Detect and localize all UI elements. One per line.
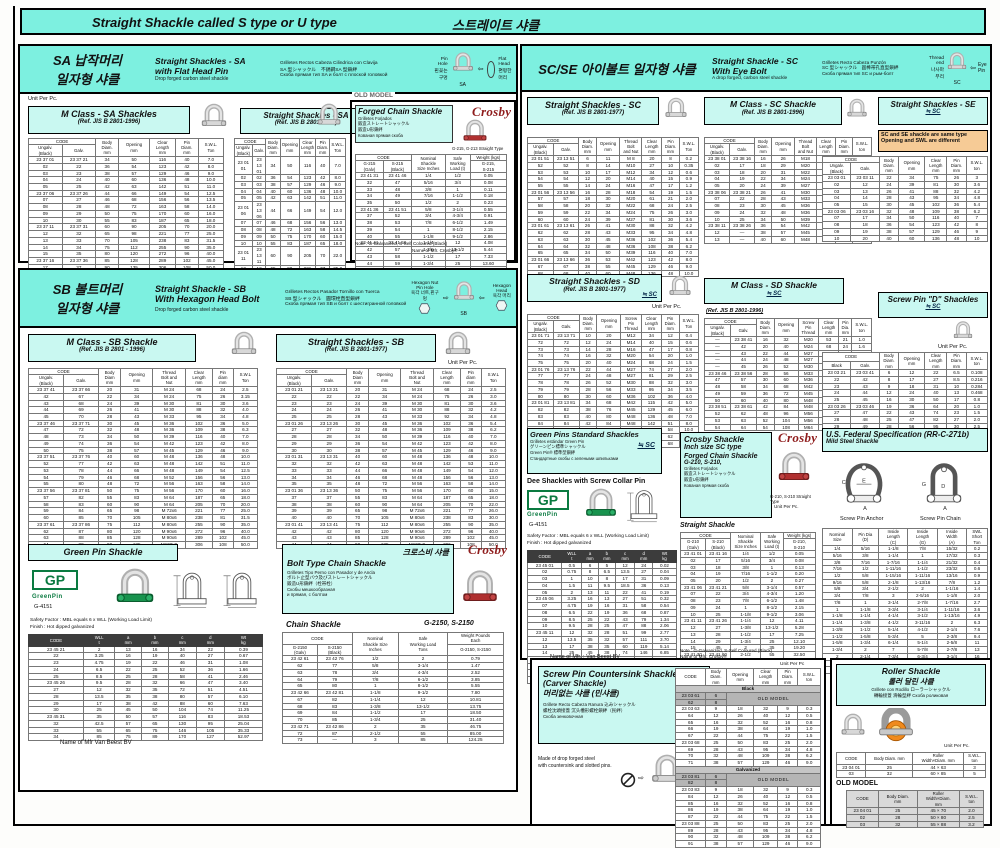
roller-table: CODEBody Diam. mmRoller Width×Diam. mmS.… xyxy=(836,752,986,778)
old-model-label: OLD MODEL xyxy=(352,92,395,99)
msd-label: M Class - SD Shackle ≒ SC xyxy=(704,278,844,304)
crosby-shackle-icon xyxy=(460,118,490,148)
cs-made-1: Made of drop forged steel xyxy=(538,756,595,763)
sa-flat-head-label: Flat Head편평한 머리 xyxy=(498,57,516,81)
shackle-icon xyxy=(846,96,868,124)
sb-mclass-label: M Class - SB Shackle (Ref. JIS B 2801 - … xyxy=(28,334,196,362)
shackle-icon xyxy=(952,320,974,344)
scse-body: Straight Shackles - SC (Ref. JIS B 2801-… xyxy=(522,92,990,658)
chain-shackle-table: CODENominal Shackle Size InchesSafe Work… xyxy=(282,632,504,744)
sa-shackle-diagram: SA xyxy=(451,51,475,88)
gp-model: G-4151 xyxy=(34,604,52,610)
roller-body: Roller Shackle 롤러 달린 샤클 Grillete con Rod… xyxy=(832,660,990,824)
usfed-table: Nominal SizePin Dia (D)Inside Length (C)… xyxy=(822,528,988,674)
sa-panel: SA 납작머리 일자형 샤클 Straight Shackles - SA wi… xyxy=(18,44,518,263)
sa-mclass-table: CODEBody Diam. mmOpening mmClear Length … xyxy=(28,138,224,272)
greenpin-std-box: Green Pins Standard Shackles Grilletes e… xyxy=(527,428,662,474)
sb-straight-label: Straight Shackles - SB (Ref. JIS B 2801-… xyxy=(276,334,436,362)
unit-label: Unit Per Pc. xyxy=(448,360,477,366)
sb-intl: Grilletes Rectos Pasador Tornillo con Tu… xyxy=(285,290,410,307)
scse-title: SC/SE 아이볼트 일자형 샤클 xyxy=(522,59,712,78)
arrow-icon: ⇦ xyxy=(479,294,485,302)
unit-label: Unit Per Pc xyxy=(780,662,804,667)
crosby-shackle-icon xyxy=(460,568,500,612)
sb-diagram: Hexagon Nut Pin Hole 육각 너트,핀구멍 ⇨ SB ⇦ He… xyxy=(410,280,516,317)
svg-text:A: A xyxy=(943,506,947,512)
svg-text:A: A xyxy=(863,506,867,512)
dimension-drawing-icon xyxy=(220,566,264,612)
greenpin-label: Green Pin Shackle xyxy=(28,544,178,561)
cs-made-2: with countersink and slotted pins. xyxy=(538,763,612,770)
crosby-caption: G-215, G-213 Straight Type xyxy=(452,146,510,151)
sa-body: Unit Per Pc. M Class - SA Shackles (Ref.… xyxy=(20,94,516,260)
banner-title-kr: 스트레이트 샤클 xyxy=(452,15,539,34)
greenpin-shackle-icon xyxy=(584,486,618,526)
scse-intl: Grilletes Recto Cabeza Punzón SC 型シャックル … xyxy=(822,60,927,76)
shackle-icon xyxy=(444,330,472,362)
sc-label: Straight Shackles - SC (Ref. JIS B 2801-… xyxy=(527,97,659,125)
scse-subtitle: Straight Shackle - SC With Eye Bolt A dr… xyxy=(712,56,822,81)
unit-label: Unit Per Pc. xyxy=(652,304,681,310)
flat-head-pin-icon xyxy=(487,61,496,78)
greenpin-shackle-icon xyxy=(114,566,156,614)
thread-end-label: Thread end나사마무리 xyxy=(927,56,944,80)
chain-label: Screw Pin Chain xyxy=(920,516,961,522)
anchor-label: Screw Pin Anchor xyxy=(840,516,883,522)
crosby-mfr: Name of Mfr. Crosby® xyxy=(412,248,458,253)
sa-crosby-box: Forged Chain Shackle Grilletes Forjados … xyxy=(350,100,516,262)
hexagon-icon xyxy=(495,299,508,312)
gp-safety: Safety Factor : MBL equals 6 x WLL (Work… xyxy=(527,534,649,540)
shackle-icon xyxy=(230,330,258,362)
svg-text:G: G xyxy=(922,482,926,488)
crosby-sc-box: Crosby Shackle Inch size SC type Forged … xyxy=(680,432,772,518)
arrow-icon: ⇨ xyxy=(638,774,644,782)
se-label: Straight Shackles - SE ≒ SC xyxy=(878,97,988,125)
gp-model: G-4151 xyxy=(529,522,547,528)
countersink-panel: Screw Pin Countersink Shackle (Carver Sh… xyxy=(530,658,826,826)
msd-ref: (Ref. JIS B 2801-1996) xyxy=(706,308,763,314)
sb-title: SB 볼트머리 일자형 샤클 xyxy=(20,279,155,317)
shackle-icon xyxy=(451,51,475,77)
shackle-icon xyxy=(452,280,476,306)
dimension-drawing-icon xyxy=(170,566,214,612)
greenpin-logo-text: GreenPin xyxy=(32,594,63,600)
shackle-icon xyxy=(946,51,968,75)
sa-intl: Grilletes Rectos Cabeza Cilindrica con C… xyxy=(280,61,430,78)
unit-label: Unit Per Pc. xyxy=(938,344,967,350)
sb-subtitle: Straight Shackle - SB With Hexagon Head … xyxy=(155,284,285,313)
sa-diagram: Pin Hole핀꽂는 구멍 SA ⇦ Flat Head편평한 머리 xyxy=(430,51,516,88)
bolt-type-box: 크로스비 샤클 Bolt Type Chain Shackle Grillete… xyxy=(282,544,454,614)
shackle-icon xyxy=(664,96,688,124)
gp-finish: Finish : Hot dipped galvanized xyxy=(527,541,591,547)
slotted-pin-icon xyxy=(620,772,636,788)
hexagon-icon xyxy=(418,302,431,315)
sb-straight-table: CODEBody Diam mmOpening mmThread Bolt an… xyxy=(276,368,506,549)
arrow-icon: ⇦ xyxy=(478,65,484,73)
eye-pin-label: Eye Pin xyxy=(978,62,990,74)
se-note: SC and SE shackle are same type Opening … xyxy=(878,130,988,152)
roller-old-table: CODEBody Diam. mmRoller Width×Diam. mmS.… xyxy=(846,790,984,828)
hex-head-label: Hexagon Head 육각 머리 xyxy=(488,283,516,313)
screw-pin-chain-diagram: GDA xyxy=(918,458,970,514)
svg-text:C: C xyxy=(842,480,846,486)
crosby-logo: Crosby xyxy=(468,542,507,558)
gp-mfr: Name of Mfr Van Beest BV xyxy=(60,740,132,746)
greenpin-logo: GP xyxy=(32,570,78,590)
unit-label: Unit Per Pc. xyxy=(774,504,799,509)
arrow-icon: ⇨ xyxy=(443,294,449,302)
crosby-sc-table: CODENominal Shackle Size InchesSafe Work… xyxy=(680,532,816,659)
shackle-icon xyxy=(200,102,228,134)
sa-mclass-label: M Class - SA Shackles (Ref. JIS B 2801-1… xyxy=(28,106,190,134)
scse-header: SC/SE 아이볼트 일자형 샤클 Straight Shackle - SC … xyxy=(522,46,990,92)
usfed-box: U.S. Federal Specification (RR-C-271b) M… xyxy=(822,428,988,452)
chain-shackle-label: Chain Shackle xyxy=(286,620,341,629)
crosby-title-box: Forged Chain Shackle Grilletes Forjados … xyxy=(355,105,453,143)
g2150-label: G-2150, S-2150 xyxy=(424,620,474,627)
old-model-label: OLD MODEL xyxy=(836,780,878,787)
greenpin-logo-text: GreenPin xyxy=(527,512,558,518)
svg-text:E: E xyxy=(862,478,866,484)
crosby-note: Note : G-Galvanized, S-Self Coloured (Bl… xyxy=(680,648,772,653)
unit-label: Unit Per Pc. xyxy=(944,744,970,749)
sb-panel: SB 볼트머리 일자형 샤클 Straight Shackle - SB Wit… xyxy=(18,268,518,792)
sc-table: CODEBody Diam. mmOpening mmThread Bolt a… xyxy=(527,137,699,277)
arrow-icon: ⇦ xyxy=(970,64,976,72)
sb-mclass-table: CODEBody Diam mmOpening mmThread Bolt an… xyxy=(28,368,258,549)
unit-label: Unit Per Pc. xyxy=(28,96,57,102)
hex-nut-label: Hexagon Nut Pin Hole 육각 너트,핀구멍 xyxy=(410,280,440,316)
roller-panel: Roller Shackle 롤러 달린 샤클 Grillete con Rod… xyxy=(830,658,992,826)
sa-subtitle: Straight Shackles - SA with Flat Head Pi… xyxy=(155,56,280,82)
shackle-icon xyxy=(316,102,342,132)
cs-body: Screw Pin Countersink Shackle (Carver Sh… xyxy=(532,660,824,824)
sc-shackle-diagram: SC xyxy=(946,51,968,86)
sb-shackle-diagram: SB xyxy=(452,280,476,317)
shackle-icon xyxy=(840,712,866,742)
sa-title: SA 납작머리 일자형 샤클 xyxy=(20,50,155,88)
sb-header: SB 볼트머리 일자형 샤클 Straight Shackle - SB Wit… xyxy=(20,270,516,328)
scse-panel: SC/SE 아이볼트 일자형 샤클 Straight Shackle - SC … xyxy=(520,44,992,660)
se-table: CODEBody Diam. mmOpening mmClear Length … xyxy=(822,156,988,242)
gp-finish: Finish : Hot dipped galvanized xyxy=(30,625,94,631)
spd-label: Screw Pin "D" Shackles ≒ SC xyxy=(878,292,988,318)
roller-title-box: Roller Shackle 롤러 달린 샤클 Grillete con Rod… xyxy=(836,664,986,706)
dimension-drawing-icon xyxy=(624,484,664,526)
countersink-table: CODEBody Diam. mmOpening mmClear Length … xyxy=(675,668,821,848)
sa-header: SA 납작머리 일자형 샤클 Straight Shackles - SA wi… xyxy=(20,46,516,94)
crosby-logo: Crosby xyxy=(778,430,817,446)
svg-text:D: D xyxy=(941,484,945,490)
sb-body: M Class - SB Shackle (Ref. JIS B 2801 - … xyxy=(20,328,516,789)
shackle-icon xyxy=(668,274,692,302)
sa-pin-hole-label: Pin Hole핀꽂는 구멍 xyxy=(430,57,448,81)
sa-crosby-table: CODENominal Shackle Size InchesSafe Work… xyxy=(355,154,507,274)
scse-diagram: Thread end나사마무리 SC ⇦ Eye Pin xyxy=(927,51,990,86)
crosby-straight-label: Straight Shackle xyxy=(680,522,735,529)
sd-label: Straight Shackles - SD (Ref. JIS B 2801-… xyxy=(527,274,662,302)
banner-title: Straight Shackle called S type or U type xyxy=(92,15,337,30)
crosby-note: Note : G-Galvanized, S-Self Coloured (Bl… xyxy=(355,241,447,246)
greenpin-sb-table: CODEWLL ta mmb mmc mmd mmWt kg23 45 2121… xyxy=(28,634,263,741)
roller-shackle-icon xyxy=(876,708,916,748)
screw-pin-anchor-diagram: ECA xyxy=(838,458,890,514)
crosby-shackle-icon xyxy=(776,450,812,490)
banner: Straight Shackle called S type or U type… xyxy=(20,8,986,35)
greenpin-logo: GP xyxy=(527,490,569,510)
msc-label: M Class - SC Shackle (Ref. JIS B 2801-19… xyxy=(704,97,842,125)
gp-safety: Safety Factor : MBL equals 6 x WLL (Work… xyxy=(30,618,152,624)
